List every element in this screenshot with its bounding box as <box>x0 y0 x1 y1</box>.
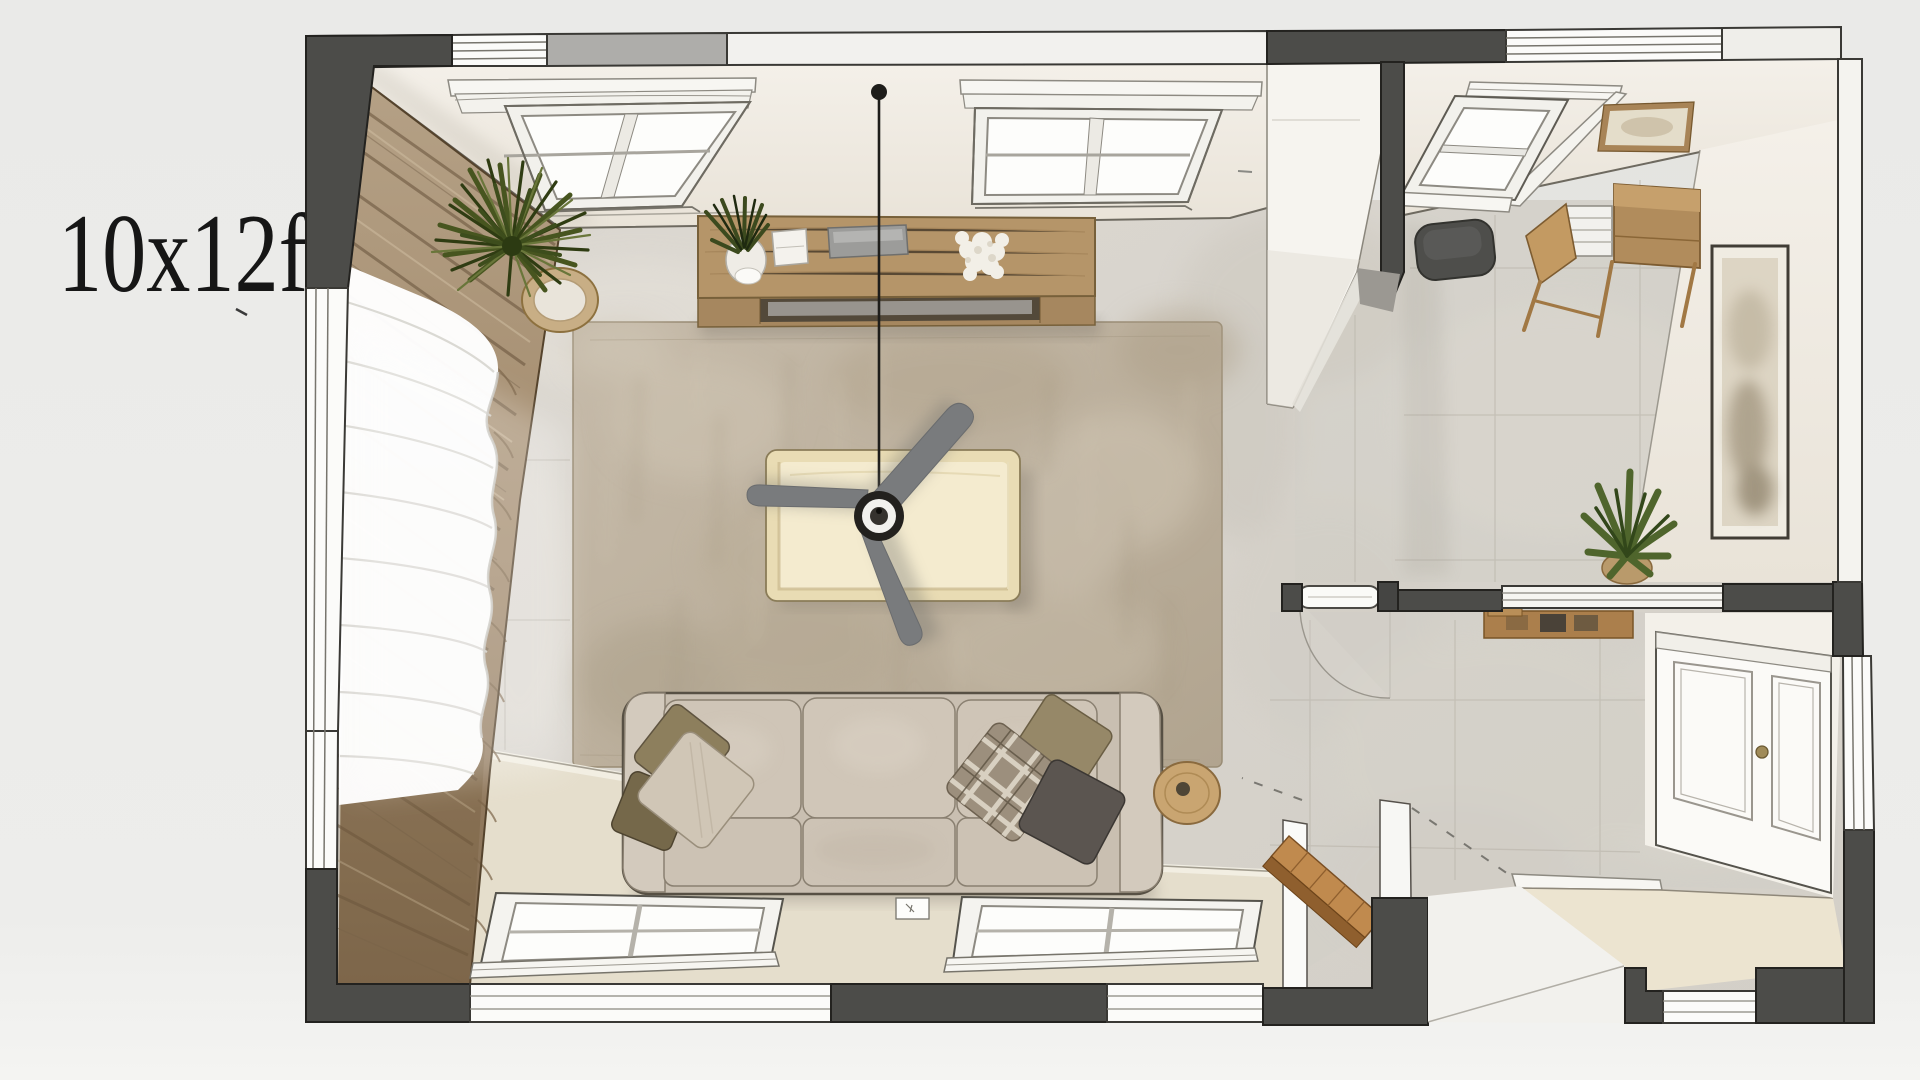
svg-text:10x12f: 10x12f <box>58 192 309 316</box>
